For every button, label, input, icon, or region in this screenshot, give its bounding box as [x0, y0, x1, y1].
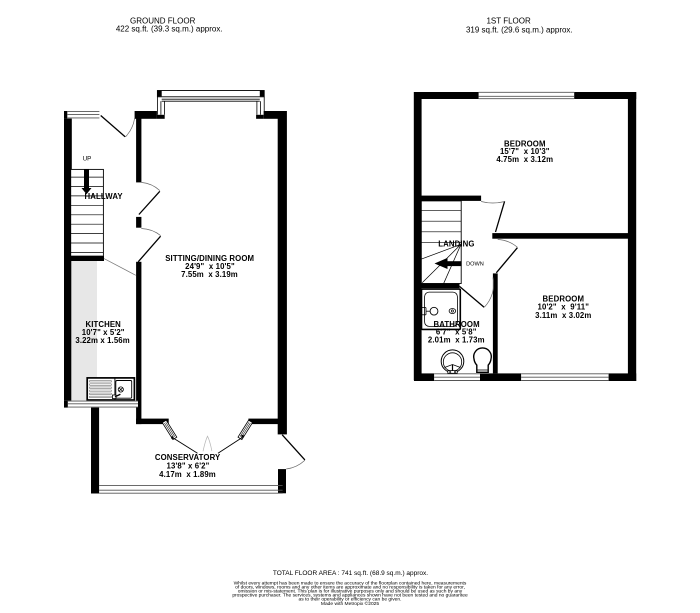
svg-text:Made with Metropix ©2025: Made with Metropix ©2025	[321, 600, 380, 607]
svg-text:UP: UP	[83, 156, 92, 163]
svg-text:DOWN: DOWN	[466, 262, 484, 268]
svg-text:3.22m x 1.56m: 3.22m x 1.56m	[75, 336, 129, 345]
svg-text:422 sq.ft. (39.3 sq.m.) approx: 422 sq.ft. (39.3 sq.m.) approx.	[116, 24, 223, 33]
svg-text:2.01m x 1.73m: 2.01m x 1.73m	[428, 335, 485, 344]
svg-text:HALLWAY: HALLWAY	[84, 192, 123, 201]
svg-text:4.75m x 3.12m: 4.75m x 3.12m	[496, 155, 553, 164]
svg-text:7.55m x 3.19m: 7.55m x 3.19m	[181, 270, 238, 279]
svg-text:3.11m x 3.02m: 3.11m x 3.02m	[535, 311, 591, 320]
svg-text:LANDING: LANDING	[438, 239, 474, 248]
svg-text:4.17m x 1.89m: 4.17m x 1.89m	[159, 470, 216, 479]
svg-text:319 sq.ft. (29.6 sq.m.) approx: 319 sq.ft. (29.6 sq.m.) approx.	[466, 25, 573, 34]
svg-text:TOTAL FLOOR AREA : 741 sq.ft.: TOTAL FLOOR AREA : 741 sq.ft. (68.9 sq.m…	[273, 570, 428, 577]
